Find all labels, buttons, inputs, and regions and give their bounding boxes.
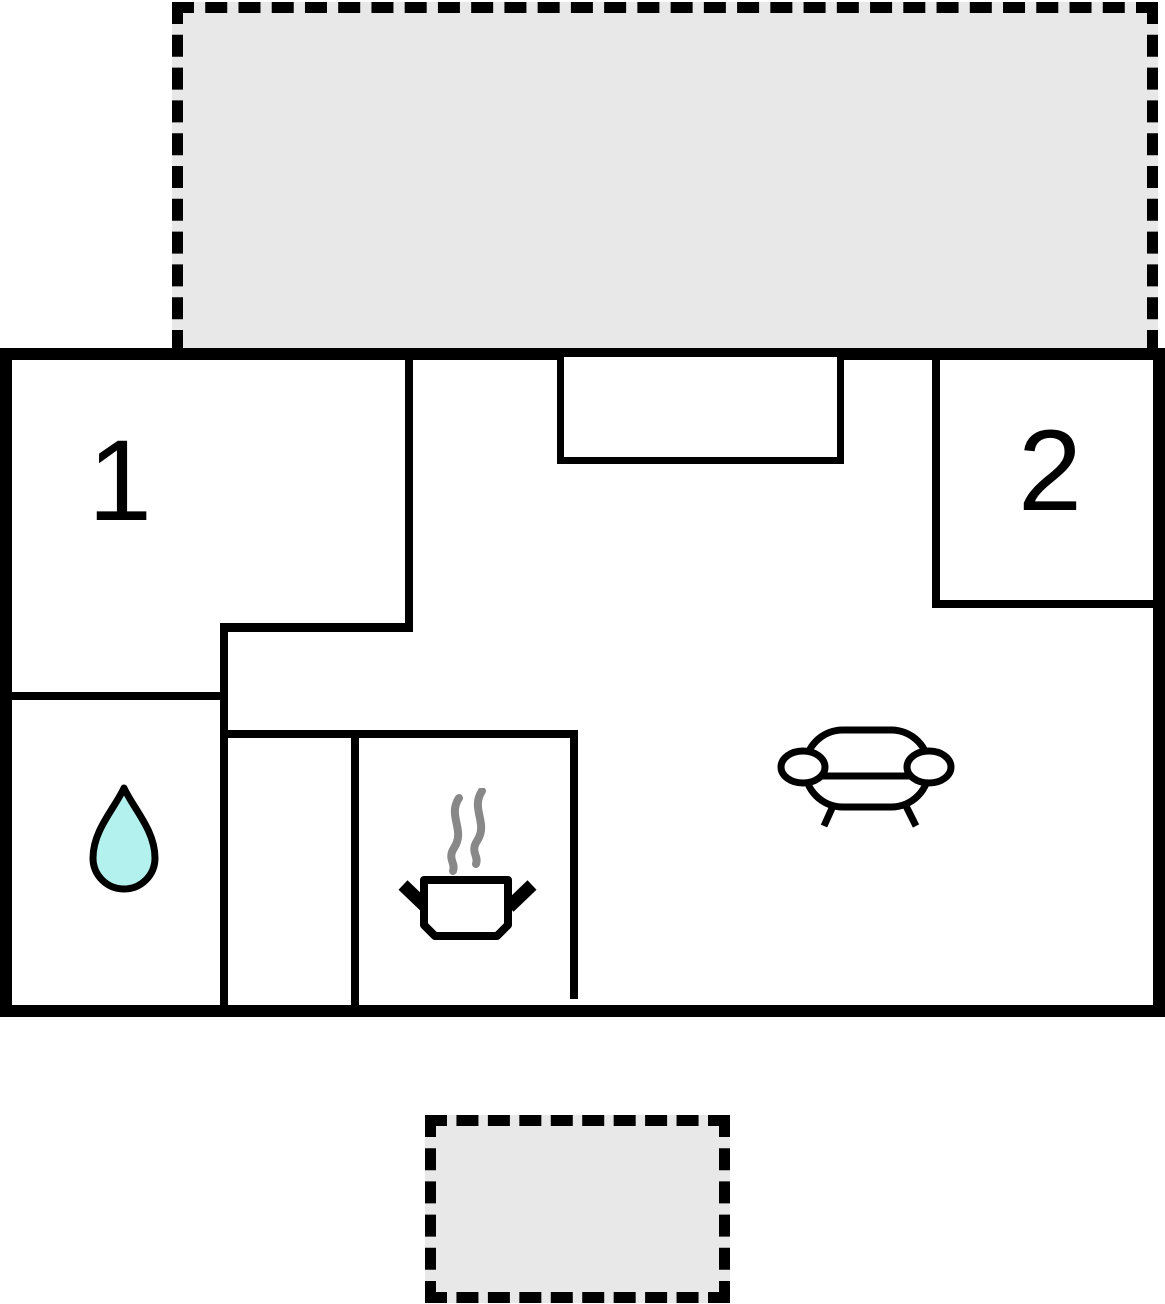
wall-hall-top <box>220 623 413 632</box>
wall-bathroom-corridor <box>220 623 228 1013</box>
floor-plan: 1 2 <box>0 0 1165 1304</box>
steam-icon <box>474 791 482 864</box>
room-2-label: 2 <box>1000 414 1100 529</box>
wall-kitchen-right <box>570 730 578 999</box>
wall-bedroom2-left <box>932 348 940 608</box>
closet-niche <box>557 350 844 464</box>
wall-bottom <box>0 1005 1165 1017</box>
wall-closet-top <box>228 730 358 738</box>
wall-bathroom-top <box>0 692 228 700</box>
pot-handle-right <box>509 885 532 907</box>
terrace-top <box>172 2 1158 352</box>
sofa-armrest-right <box>907 751 951 783</box>
wall-kitchen-left <box>351 730 359 1013</box>
sofa-leg-right <box>906 806 916 826</box>
wall-left <box>0 348 12 1017</box>
wall-kitchen-top <box>351 730 578 738</box>
wall-bedroom1-right <box>405 348 413 632</box>
wall-right <box>1153 348 1165 1017</box>
pot-body <box>424 880 508 936</box>
sofa-armrest-left <box>781 751 825 783</box>
room-1-label: 1 <box>70 424 170 539</box>
water-drop-shape <box>93 788 155 889</box>
steam-icon <box>451 798 459 871</box>
terrace-bottom <box>425 1115 730 1303</box>
sofa-icon <box>775 722 960 832</box>
water-drop-icon <box>85 782 163 904</box>
wall-bedroom2-bottom <box>932 600 1153 608</box>
cooking-pot-icon <box>395 788 540 943</box>
